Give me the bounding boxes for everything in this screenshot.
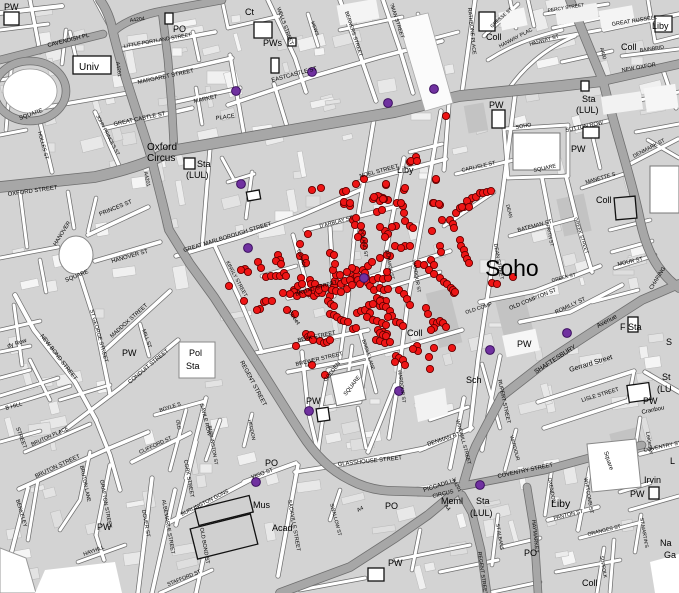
svg-text:Ct: Ct (245, 7, 254, 17)
svg-text:PW: PW (97, 522, 112, 532)
svg-text:PW: PW (643, 396, 658, 406)
svg-text:Meml: Meml (441, 496, 463, 506)
svg-text:PW: PW (122, 348, 137, 358)
svg-text:Sta: Sta (476, 496, 490, 506)
svg-text:Ga: Ga (664, 550, 676, 560)
svg-text:Coll: Coll (407, 328, 423, 338)
svg-text:Sta: Sta (186, 361, 200, 371)
svg-text:PW: PW (306, 396, 321, 406)
svg-text:Acad: Acad (272, 523, 293, 533)
svg-text:(LU: (LU (657, 384, 672, 394)
svg-text:Liby: Liby (652, 21, 669, 31)
svg-text:PO: PO (265, 458, 278, 468)
svg-text:PW: PW (571, 144, 586, 154)
svg-text:PW: PW (388, 558, 403, 568)
svg-text:Liby: Liby (397, 165, 414, 175)
svg-text:Soho: Soho (485, 255, 539, 281)
svg-text:Oxford: Oxford (147, 142, 177, 153)
svg-text:PW: PW (489, 100, 504, 110)
svg-text:(LUL): (LUL) (576, 105, 599, 115)
svg-text:(LUL): (LUL) (470, 508, 493, 518)
svg-text:F Sta: F Sta (620, 322, 642, 332)
svg-text:Coll: Coll (596, 195, 612, 205)
svg-text:Circus: Circus (147, 153, 175, 164)
svg-text:S: S (666, 337, 672, 347)
svg-text:St: St (662, 372, 671, 382)
svg-text:Irvin: Irvin (644, 475, 661, 485)
svg-text:Sch: Sch (466, 375, 482, 385)
svg-text:Coll: Coll (582, 578, 598, 588)
svg-text:PW: PW (517, 339, 532, 349)
svg-text:Univ: Univ (79, 62, 99, 73)
svg-text:Na: Na (660, 538, 672, 548)
svg-text:Liby: Liby (551, 498, 571, 510)
svg-text:PO: PO (173, 24, 186, 34)
svg-text:Coll: Coll (486, 32, 502, 42)
svg-text:Sta: Sta (197, 159, 211, 169)
svg-text:PW: PW (4, 2, 19, 12)
svg-text:Mus: Mus (253, 500, 271, 510)
svg-text:PO: PO (385, 501, 398, 511)
svg-text:PWs: PWs (263, 38, 282, 48)
svg-text:Sta: Sta (582, 94, 596, 104)
svg-text:L: L (670, 456, 675, 466)
svg-text:(LUL): (LUL) (186, 170, 209, 180)
svg-text:Coll: Coll (621, 42, 637, 52)
svg-text:Pol: Pol (189, 348, 202, 358)
svg-text:PW: PW (630, 489, 645, 499)
svg-text:PO: PO (524, 548, 537, 558)
